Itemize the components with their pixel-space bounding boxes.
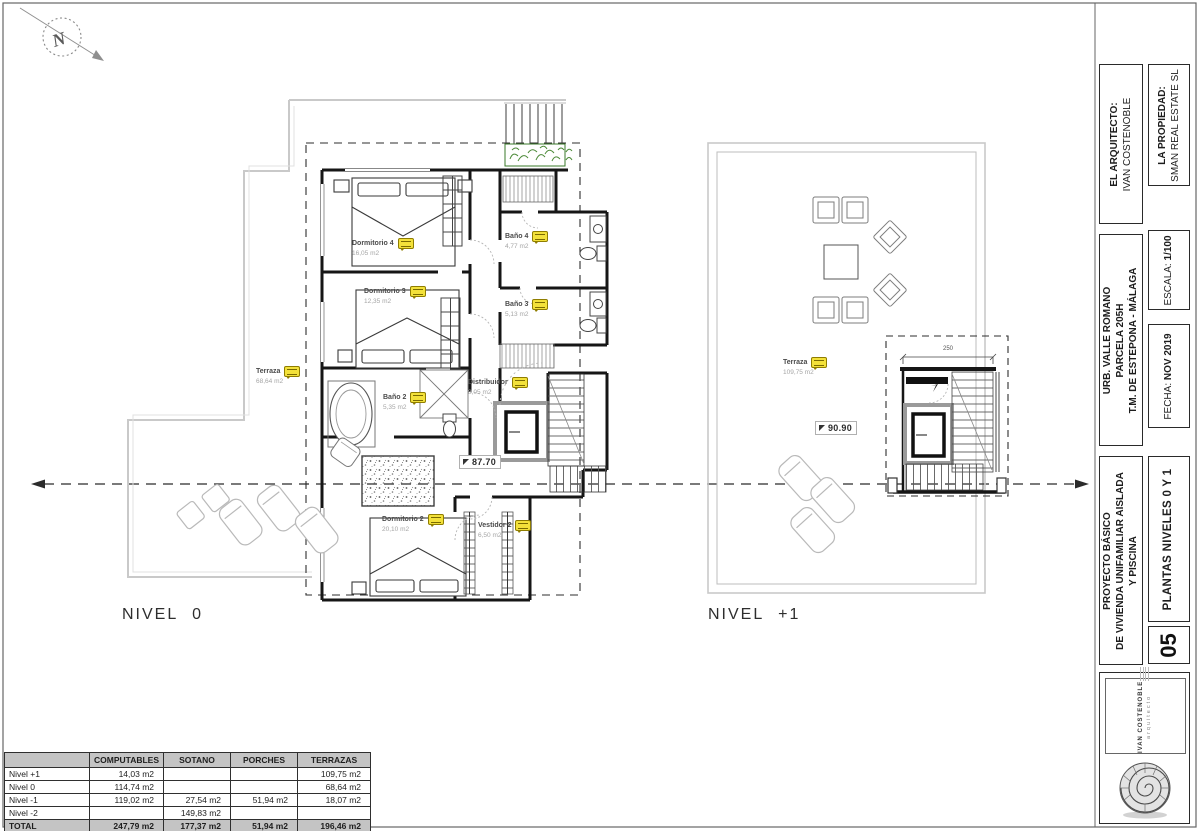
date-value: NOV 2019 (1163, 333, 1174, 380)
north-arrow-icon: N (20, 8, 104, 61)
table-cell (231, 781, 298, 794)
table-header-cell: PORCHES (231, 753, 298, 768)
north-letter: N (49, 28, 69, 52)
room-label-terraza-n0: Terraza 68,64 m2 (256, 366, 300, 386)
stair-dimension-value: 250 (934, 346, 962, 352)
row-label: Nivel -2 (5, 807, 90, 820)
room-area: 5,13 m2 (505, 311, 529, 318)
annotation-tag-icon[interactable] (428, 514, 444, 525)
titleblock-logo: IVAN COSTENOBLE arquitecto (1099, 672, 1190, 824)
annotation-tag-icon[interactable] (410, 392, 426, 403)
level-icon (463, 459, 469, 465)
nautilus-logo-icon (1105, 757, 1184, 821)
location-line2: PARCELA 205H (1114, 304, 1127, 378)
room-area: 8,05 m2 (468, 389, 492, 396)
annotation-tag-icon[interactable] (284, 366, 300, 377)
plan-linework: N (0, 0, 1200, 831)
annotation-tag-icon[interactable] (515, 520, 531, 531)
scale-label: ESCALA: (1163, 263, 1174, 305)
table-header-cell (5, 753, 90, 768)
sheet-number: 05 (1156, 633, 1182, 657)
room-label-bano-2: Baño 2 5,35 m2 (383, 392, 426, 412)
titleblock-date: FECHA: NOV 2019 (1148, 324, 1190, 428)
table-header-cell: TERRAZAS (298, 753, 371, 768)
table-header-cell: SOTANO (164, 753, 231, 768)
table-cell (298, 807, 371, 820)
date-label: FECHA: (1163, 383, 1174, 420)
room-label-distribuidor: Distribuidor 8,05 m2 (468, 377, 528, 397)
areas-table: COMPUTABLES SOTANO PORCHES TERRAZAS Nive… (4, 752, 371, 831)
table-cell (231, 807, 298, 820)
rug-icon (362, 456, 434, 506)
vanity-icon (590, 216, 606, 316)
room-name: Baño 3 (505, 300, 528, 309)
table-cell: 114,74 m2 (90, 781, 164, 794)
level-icon (819, 425, 825, 431)
location-line1: URB. VALLE ROMANO (1101, 287, 1114, 395)
room-label-dormitorio-2: Dormitorio 2 20,10 m2 (382, 514, 444, 534)
room-area: 109,75 m2 (783, 369, 814, 376)
row-label: Nivel +1 (5, 768, 90, 781)
table-cell: 247,79 m2 (90, 820, 164, 831)
titleblock-location: URB. VALLE ROMANO PARCELA 205H T.M. DE E… (1099, 234, 1143, 446)
titleblock-architect: EL ARQUITECTO: IVAN COSTENOBLE (1099, 64, 1143, 224)
room-label-vestidor-2: Vestidor 2 6,50 m2 (478, 520, 531, 540)
sheet-title: PLANTAS NIVELES 0 Y 1 (1161, 469, 1176, 611)
drawing-sheet: N (0, 0, 1200, 831)
table-row: Nivel 0 114,74 m2 68,64 m2 (5, 781, 371, 794)
elevator-icon (495, 403, 548, 460)
table-cell: 196,46 m2 (298, 820, 371, 831)
room-name: Terraza (783, 358, 807, 367)
annotation-tag-icon[interactable] (512, 377, 528, 388)
lounger-icons (176, 482, 341, 556)
row-label: Nivel 0 (5, 781, 90, 794)
room-name: Dormitorio 3 (364, 287, 406, 296)
table-cell: 68,64 m2 (298, 781, 371, 794)
table-cell: 51,94 m2 (231, 820, 298, 831)
shower-icon (420, 370, 468, 418)
table-cell: 27,54 m2 (164, 794, 231, 807)
terrace-furniture (813, 197, 907, 323)
stair-block (888, 369, 1006, 493)
stairs-icon (548, 374, 606, 492)
annotation-tag-icon[interactable] (811, 357, 827, 368)
table-cell: 14,03 m2 (90, 768, 164, 781)
logo-architect-name: IVAN COSTENOBLE (1138, 681, 1144, 753)
table-cell (164, 781, 231, 794)
plan-title-nivel-1: NIVEL +1 (708, 606, 800, 624)
room-label-terraza-n1: Terraza 109,75 m2 (783, 357, 827, 377)
table-cell (164, 768, 231, 781)
room-area: 6,50 m2 (478, 532, 502, 539)
table-row: Nivel -2 149,83 m2 (5, 807, 371, 820)
table-total-row: TOTAL 247,79 m2 177,37 m2 51,94 m2 196,4… (5, 820, 371, 831)
room-name: Baño 2 (383, 393, 406, 402)
titleblock-sheet-number: 05 (1148, 626, 1190, 664)
annotation-tag-icon[interactable] (398, 238, 414, 249)
property-name: SMAN REAL ESTATE SL (1169, 69, 1182, 182)
scale-value: 1/100 (1163, 235, 1174, 260)
room-area: 5,35 m2 (383, 404, 407, 411)
table-row: Nivel +1 14,03 m2 109,75 m2 (5, 768, 371, 781)
table-cell: 177,37 m2 (164, 820, 231, 831)
room-area: 16,05 m2 (352, 250, 379, 257)
lounger-icons (776, 452, 858, 556)
logo-subtitle: arquitecto (1146, 681, 1152, 753)
plan-nivel-1 (708, 143, 1008, 593)
row-label: Nivel -1 (5, 794, 90, 807)
project-line3: Y PISCINA (1127, 536, 1140, 586)
titleblock-property: LA PROPIEDAD: SMAN REAL ESTATE SL (1148, 64, 1190, 186)
plan-title-nivel-0: NIVEL 0 (122, 606, 203, 624)
table-row: Nivel -1 119,02 m2 27,54 m2 51,94 m2 18,… (5, 794, 371, 807)
planter-icon (505, 144, 572, 166)
property-label: LA PROPIEDAD: (1156, 86, 1169, 165)
room-label-dormitorio-4: Dormitorio 4 16,05 m2 (352, 238, 414, 258)
room-name: Baño 4 (505, 232, 528, 241)
table-cell: 109,75 m2 (298, 768, 371, 781)
table-cell (231, 768, 298, 781)
level-value: 90.90 (828, 423, 852, 433)
room-label-bano-3: Baño 3 5,13 m2 (505, 299, 548, 319)
room-area: 12,35 m2 (364, 298, 391, 305)
room-label-dormitorio-3: Dormitorio 3 12,35 m2 (364, 286, 426, 306)
table-header-cell: COMPUTABLES (90, 753, 164, 768)
logo-contact-lines (1139, 667, 1151, 681)
table-header-row: COMPUTABLES SOTANO PORCHES TERRAZAS (5, 753, 371, 768)
location-line3: T.M. DE ESTEPONA - MÁLAGA (1127, 268, 1140, 414)
project-line2: DE VIVIENDA UNIFAMILIAR AISLADA (1114, 472, 1127, 650)
logo-card: IVAN COSTENOBLE arquitecto (1105, 678, 1186, 754)
architect-label: EL ARQUITECTO: (1108, 102, 1121, 186)
room-area: 4,77 m2 (505, 243, 529, 250)
titleblock-scale: ESCALA: 1/100 (1148, 230, 1190, 310)
table-cell: 119,02 m2 (90, 794, 164, 807)
table-cell: 18,07 m2 (298, 794, 371, 807)
titleblock-sheet-title: PLANTAS NIVELES 0 Y 1 (1148, 456, 1190, 622)
table-cell (90, 807, 164, 820)
project-line1: PROYECTO BÁSICO (1101, 512, 1114, 610)
annotation-tag-icon[interactable] (532, 299, 548, 310)
level-marker-n1: 90.90 (815, 421, 857, 435)
room-name: Dormitorio 2 (382, 515, 424, 524)
dimension-line (900, 354, 996, 364)
room-name: Vestidor 2 (478, 521, 511, 530)
annotation-tag-icon[interactable] (532, 231, 548, 242)
room-name: Terraza (256, 367, 280, 376)
titleblock-project: PROYECTO BÁSICO DE VIVIENDA UNIFAMILIAR … (1099, 456, 1143, 665)
table-cell: 51,94 m2 (231, 794, 298, 807)
architect-name: IVAN COSTENOBLE (1121, 98, 1134, 192)
room-label-bano-4: Baño 4 4,77 m2 (505, 231, 548, 251)
level-value: 87.70 (472, 457, 496, 467)
room-area: 20,10 m2 (382, 526, 409, 533)
level-marker-n0: 87.70 (459, 455, 501, 469)
table-cell: 149,83 m2 (164, 807, 231, 820)
room-area: 68,64 m2 (256, 378, 283, 385)
plan-nivel-0 (128, 100, 607, 600)
annotation-tag-icon[interactable] (410, 286, 426, 297)
room-name: Distribuidor (468, 378, 508, 387)
row-label: TOTAL (5, 820, 90, 831)
room-name: Dormitorio 4 (352, 239, 394, 248)
